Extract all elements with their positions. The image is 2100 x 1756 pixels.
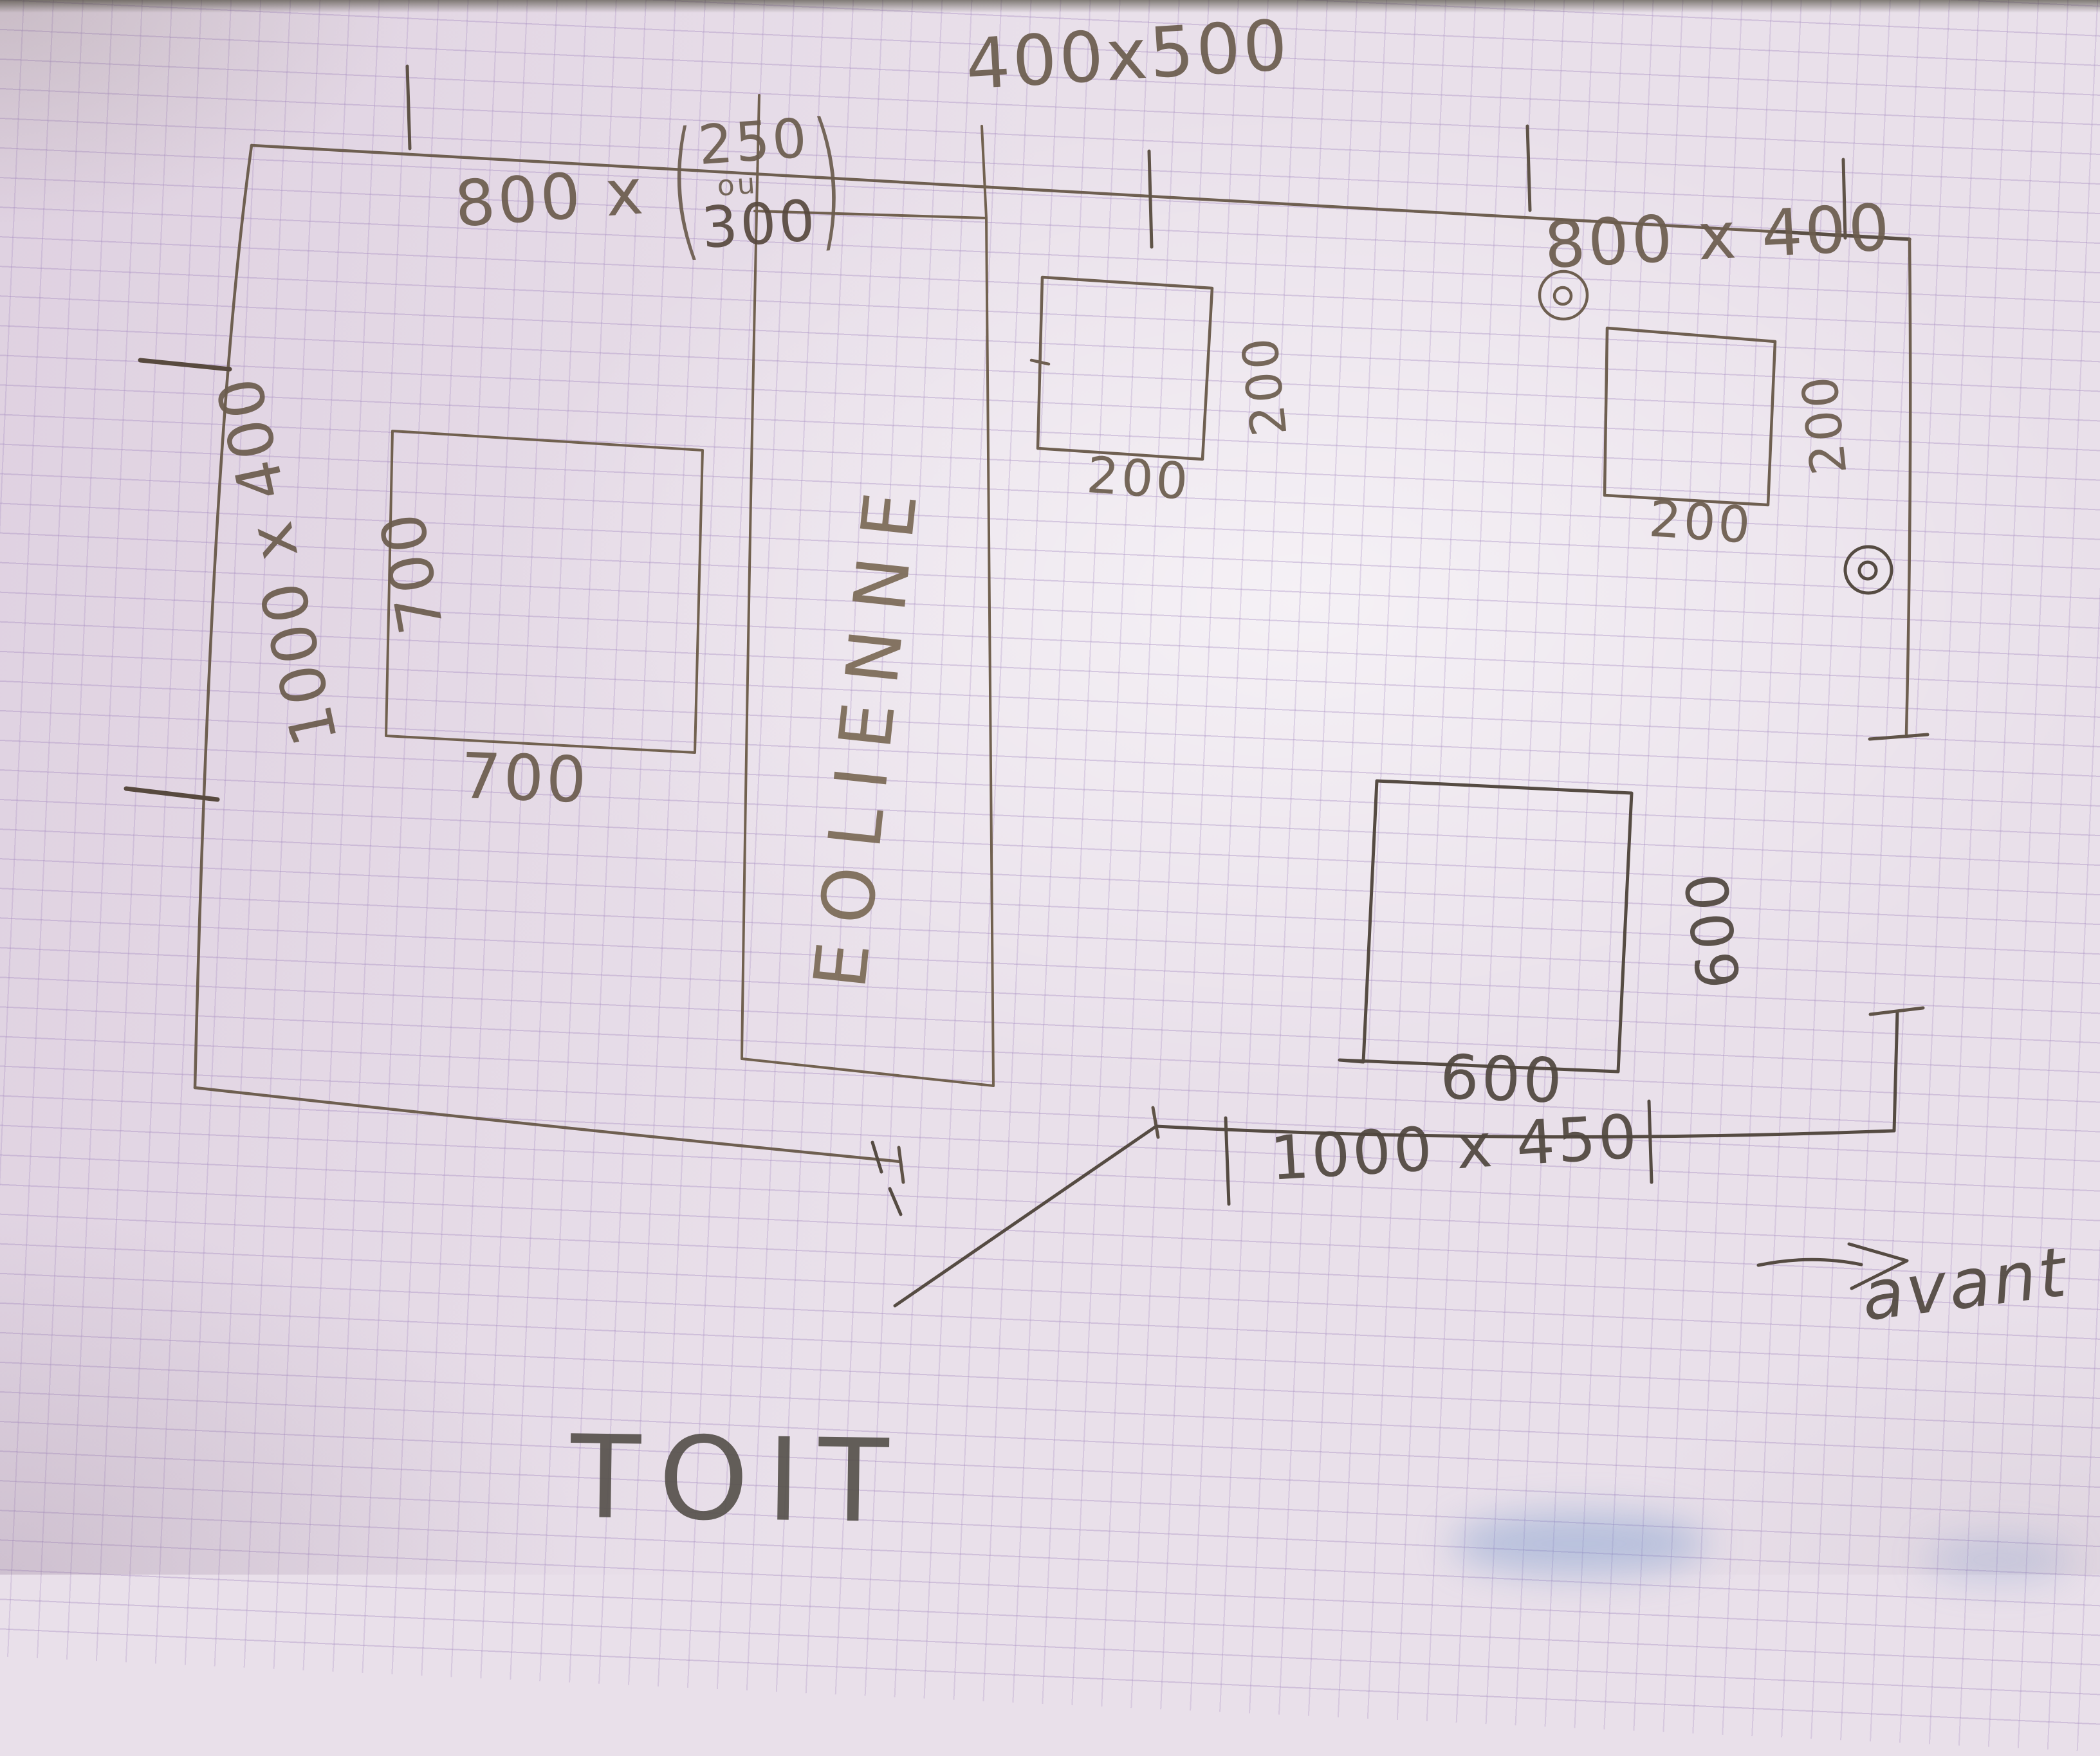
turbine-top-tick <box>982 126 986 218</box>
square-200-middle <box>1038 277 1212 459</box>
square-200-right-bottom-label: 200 <box>1648 494 1755 551</box>
turbine-right-edge <box>986 218 993 1086</box>
roof-outline <box>195 145 1928 1306</box>
dim-top-center: 400x500 <box>964 11 1292 100</box>
screw-marker-inner <box>1859 562 1876 579</box>
square-200-right <box>1605 328 1775 505</box>
dim-top-left-prefix: 800 x <box>453 160 647 236</box>
square-200-middle-bottom-label: 200 <box>1085 450 1192 508</box>
arrow-shaft <box>1758 1259 1861 1265</box>
opening-dash-1 <box>872 1142 881 1172</box>
top-tick-2 <box>1149 151 1152 247</box>
roof-right-edge-upper <box>1906 239 1910 734</box>
turbine-bottom-edge <box>742 1059 993 1086</box>
square-200-middle-nub <box>1031 360 1049 364</box>
square-600-side-label: 600 <box>1678 868 1750 992</box>
bottom-opening-left-tick <box>899 1148 903 1182</box>
roof-right-edge-lower <box>1894 1012 1897 1131</box>
dim-top-left-options: 250 ou 300 <box>694 113 819 255</box>
opening-dash-2 <box>890 1189 901 1214</box>
right-opening-upper-tick <box>1870 735 1928 739</box>
page-title: TOIT <box>570 1420 907 1539</box>
bottom-dim-tick-right <box>1649 1101 1652 1182</box>
square-200-middle-side-label: 200 <box>1235 333 1294 439</box>
square-200-right-side-label: 200 <box>1795 372 1854 477</box>
square-600 <box>1340 781 1632 1072</box>
square-700-bottom-label: 700 <box>460 745 590 812</box>
dim-top-left: 800 x ( 250 ou 300 ) <box>450 109 864 272</box>
dim-option-b: 300 <box>700 193 819 255</box>
bottom-opening-right-tick <box>1153 1108 1158 1137</box>
screw-marker-outer <box>1845 547 1892 593</box>
screw-marker-bottom <box>1845 547 1892 593</box>
top-tick-3 <box>1527 126 1530 210</box>
top-tick-1 <box>407 66 410 149</box>
dim-top-right: 800 x 400 <box>1543 196 1893 278</box>
door-leaf-diagonal <box>895 1126 1156 1306</box>
roof-left-edge <box>195 145 252 1088</box>
dim-option-a: 250 <box>697 113 811 172</box>
left-tick-upper <box>140 360 230 369</box>
roof-bottom-edge-left <box>195 1088 901 1162</box>
screw-marker-inner <box>1554 288 1571 304</box>
photographed-sketch: { "document": { "kind": "hand-drawn roof… <box>0 0 2100 1575</box>
square-600-bottom-label: 600 <box>1439 1047 1566 1113</box>
